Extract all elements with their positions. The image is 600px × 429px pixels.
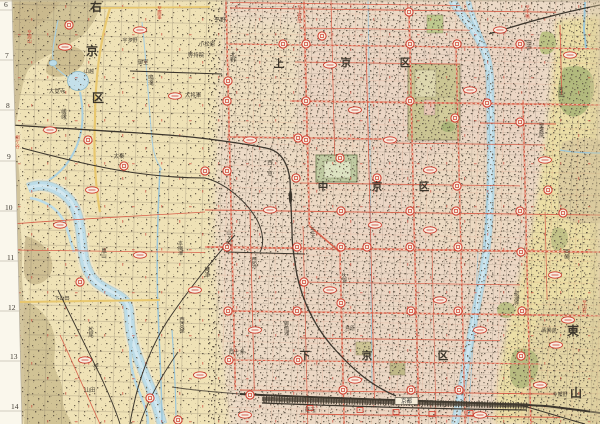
svg-text:東: 東 bbox=[567, 323, 579, 338]
svg-text:北野: 北野 bbox=[229, 50, 236, 63]
svg-text:西ノ京: 西ノ京 bbox=[266, 160, 273, 178]
svg-text:梅津: 梅津 bbox=[203, 265, 210, 279]
svg-text:島原: 島原 bbox=[345, 325, 355, 332]
svg-text:至周山: 至周山 bbox=[27, 30, 33, 45]
svg-text:宇多野: 宇多野 bbox=[122, 37, 137, 44]
svg-text:大将軍: 大将軍 bbox=[185, 91, 202, 99]
svg-text:京: 京 bbox=[341, 56, 352, 69]
svg-text:泉涌寺: 泉涌寺 bbox=[513, 290, 519, 306]
svg-text:京: 京 bbox=[372, 180, 383, 193]
svg-text:御前通: 御前通 bbox=[283, 320, 289, 337]
svg-text:京: 京 bbox=[86, 43, 98, 58]
svg-text:等持院: 等持院 bbox=[188, 51, 205, 59]
svg-text:至山科: 至山科 bbox=[582, 300, 588, 315]
svg-text:区: 区 bbox=[419, 181, 430, 193]
svg-text:14: 14 bbox=[11, 402, 19, 411]
svg-text:至鷹峯: 至鷹峯 bbox=[157, 6, 163, 21]
svg-text:嵯峨: 嵯峨 bbox=[60, 107, 67, 121]
svg-text:東寺: 東寺 bbox=[304, 406, 316, 414]
svg-text:大覚寺: 大覚寺 bbox=[49, 87, 66, 95]
svg-text:区: 区 bbox=[400, 57, 411, 69]
svg-text:中: 中 bbox=[318, 180, 329, 193]
svg-text:嵐山: 嵐山 bbox=[100, 246, 107, 260]
svg-text:鳴滝: 鳴滝 bbox=[147, 73, 154, 87]
svg-text:京: 京 bbox=[362, 349, 373, 362]
svg-text:区: 区 bbox=[92, 91, 104, 105]
svg-text:山越: 山越 bbox=[84, 68, 94, 75]
svg-text:至下鴨: 至下鴨 bbox=[525, 5, 531, 20]
svg-text:10: 10 bbox=[5, 203, 13, 212]
svg-text:桂: 桂 bbox=[93, 362, 99, 370]
svg-text:大宮: 大宮 bbox=[341, 272, 347, 284]
svg-text:区: 区 bbox=[438, 350, 449, 362]
svg-text:清閑寺: 清閑寺 bbox=[541, 327, 556, 334]
svg-text:西院: 西院 bbox=[250, 256, 257, 269]
svg-text:吉田: 吉田 bbox=[557, 86, 564, 99]
svg-text:小松原: 小松原 bbox=[199, 40, 216, 48]
svg-text:8: 8 bbox=[6, 101, 10, 110]
svg-text:西七条: 西七条 bbox=[229, 348, 246, 356]
svg-text:桐ケ谷: 桐ケ谷 bbox=[15, 134, 21, 150]
svg-text:下: 下 bbox=[300, 350, 311, 362]
svg-text:本梅津: 本梅津 bbox=[177, 240, 183, 257]
svg-text:山田: 山田 bbox=[84, 386, 95, 394]
svg-text:壬生: 壬生 bbox=[309, 225, 316, 238]
svg-text:御室: 御室 bbox=[137, 58, 149, 66]
svg-text:松尾: 松尾 bbox=[87, 325, 94, 339]
svg-text:12: 12 bbox=[8, 303, 16, 312]
svg-text:下山田: 下山田 bbox=[54, 295, 69, 302]
svg-text:7: 7 bbox=[5, 51, 9, 60]
svg-text:山: 山 bbox=[570, 385, 582, 400]
svg-text:今熊野: 今熊野 bbox=[552, 391, 567, 398]
svg-text:13: 13 bbox=[10, 352, 18, 361]
svg-text:至上賀茂: 至上賀茂 bbox=[297, 5, 303, 25]
svg-text:平野: 平野 bbox=[214, 16, 226, 24]
svg-text:9: 9 bbox=[7, 152, 11, 161]
svg-text:田中: 田中 bbox=[525, 39, 532, 52]
svg-text:上: 上 bbox=[274, 57, 285, 70]
svg-text:右: 右 bbox=[89, 0, 102, 14]
svg-text:西京極: 西京極 bbox=[178, 317, 185, 335]
svg-text:聖護院: 聖護院 bbox=[538, 123, 544, 139]
svg-text:太秦: 太秦 bbox=[113, 152, 125, 160]
svg-text:11: 11 bbox=[7, 253, 14, 262]
svg-text:岡崎: 岡崎 bbox=[563, 248, 570, 260]
svg-text:山ノ内: 山ノ内 bbox=[225, 229, 232, 248]
svg-text:京都: 京都 bbox=[401, 397, 413, 405]
